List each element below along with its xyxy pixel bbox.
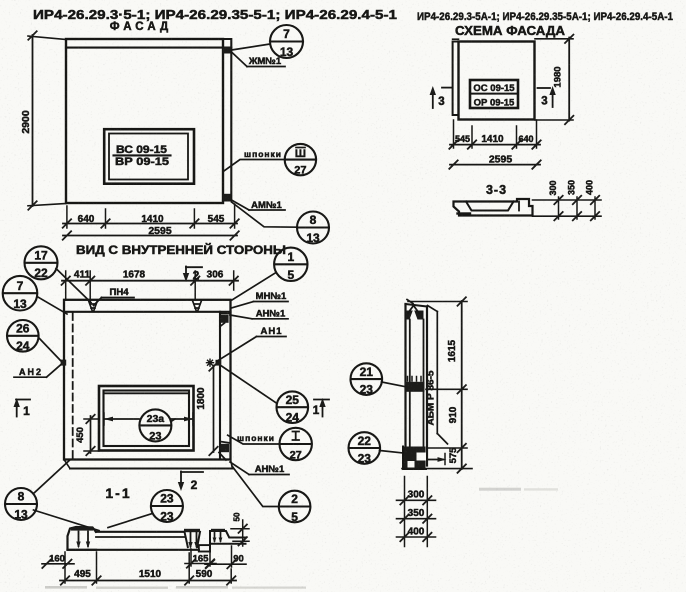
svg-text:23: 23 <box>149 431 161 443</box>
svg-text:АН№1: АН№1 <box>255 464 285 475</box>
svg-text:1: 1 <box>287 250 294 264</box>
svg-text:26: 26 <box>16 322 30 336</box>
svg-text:шпонки: шпонки <box>237 433 275 443</box>
svg-text:3: 3 <box>541 96 547 108</box>
svg-text:1: 1 <box>313 403 320 417</box>
svg-text:910: 910 <box>448 406 459 423</box>
svg-text:АН2: АН2 <box>19 367 43 377</box>
svg-text:1678: 1678 <box>123 270 146 281</box>
svg-text:1-1: 1-1 <box>105 485 131 501</box>
svg-text:50: 50 <box>233 512 242 521</box>
svg-text:3-3: 3-3 <box>486 183 507 197</box>
svg-text:25: 25 <box>286 393 300 407</box>
svg-text:400: 400 <box>585 180 595 195</box>
svg-text:545: 545 <box>208 214 225 225</box>
svg-text:17: 17 <box>34 249 48 263</box>
svg-text:5: 5 <box>287 268 294 282</box>
svg-text:13: 13 <box>306 231 320 245</box>
svg-text:13: 13 <box>280 45 294 59</box>
svg-text:2595: 2595 <box>489 154 513 166</box>
svg-text:3: 3 <box>438 96 444 108</box>
svg-text:411: 411 <box>74 270 91 281</box>
svg-text:7: 7 <box>17 279 24 293</box>
svg-text:13: 13 <box>13 297 27 311</box>
svg-text:АБМ Р 86-5: АБМ Р 86-5 <box>426 371 436 426</box>
svg-text:1410: 1410 <box>141 214 164 225</box>
svg-text:23: 23 <box>360 383 374 397</box>
svg-text:640: 640 <box>518 134 533 144</box>
svg-text:ОС 09-15: ОС 09-15 <box>473 83 515 94</box>
svg-text:МН№1: МН№1 <box>256 291 287 302</box>
svg-text:1510: 1510 <box>139 569 162 580</box>
svg-text:300: 300 <box>548 180 558 195</box>
svg-text:2595: 2595 <box>148 225 172 237</box>
svg-text:450: 450 <box>75 427 86 443</box>
svg-text:Ш: Ш <box>295 148 306 160</box>
svg-text:495: 495 <box>74 569 91 580</box>
svg-text:23а: 23а <box>147 413 165 425</box>
svg-text:5: 5 <box>291 510 298 524</box>
svg-text:640: 640 <box>78 214 95 225</box>
svg-text:22: 22 <box>358 434 372 448</box>
svg-text:2: 2 <box>291 492 298 506</box>
svg-text:2: 2 <box>191 478 198 492</box>
svg-text:АН1: АН1 <box>260 326 282 337</box>
svg-text:ПН4: ПН4 <box>110 287 130 298</box>
svg-text:545: 545 <box>455 134 470 144</box>
svg-text:350: 350 <box>567 180 577 195</box>
svg-text:21: 21 <box>360 365 374 379</box>
svg-text:7: 7 <box>283 27 290 41</box>
svg-text:350: 350 <box>408 508 425 519</box>
svg-text:13: 13 <box>14 508 28 522</box>
svg-text:2: 2 <box>193 269 200 283</box>
svg-text:ВИД С ВНУТРЕННЕЙ СТОРОНЫ: ВИД С ВНУТРЕННЕЙ СТОРОНЫ <box>76 244 286 257</box>
svg-text:ВС 09-15: ВС 09-15 <box>116 144 167 156</box>
svg-text:ИР4-26.29.3-5А-1; ИР4-26.29.35: ИР4-26.29.3-5А-1; ИР4-26.29.35-5А-1; ИР4… <box>417 11 673 23</box>
svg-text:8: 8 <box>18 490 25 504</box>
svg-text:ОР 09-15: ОР 09-15 <box>474 98 515 109</box>
svg-text:1800: 1800 <box>196 387 207 410</box>
svg-text:ИР4-26.29.3·5-1; ИР4-26.29.35-: ИР4-26.29.3·5-1; ИР4-26.29.35-5-1; ИР4-2… <box>33 8 397 22</box>
svg-text:СХЕМА ФАСАДА: СХЕМА ФАСАДА <box>455 23 566 38</box>
svg-text:400: 400 <box>408 526 425 537</box>
svg-text:22: 22 <box>34 266 48 280</box>
svg-text:306: 306 <box>207 270 224 281</box>
svg-text:2900: 2900 <box>20 110 32 134</box>
svg-text:ВР 09-15: ВР 09-15 <box>115 156 169 168</box>
svg-text:27: 27 <box>290 450 302 462</box>
svg-text:575: 575 <box>448 447 459 464</box>
svg-text:23: 23 <box>160 492 174 506</box>
svg-text:27: 27 <box>294 165 306 177</box>
svg-text:1: 1 <box>23 404 30 418</box>
svg-text:90: 90 <box>233 554 244 565</box>
svg-text:1615: 1615 <box>447 339 458 362</box>
svg-text:шпонки: шпонки <box>244 149 282 159</box>
svg-text:165: 165 <box>193 554 210 565</box>
svg-text:590: 590 <box>196 569 213 580</box>
svg-text:23: 23 <box>160 510 174 524</box>
svg-text:24: 24 <box>16 339 30 353</box>
svg-text:1980: 1980 <box>553 66 564 87</box>
svg-text:160: 160 <box>49 554 65 565</box>
svg-text:8: 8 <box>310 213 317 227</box>
svg-text:23: 23 <box>358 452 372 466</box>
svg-text:ЖМ№1: ЖМ№1 <box>248 56 282 67</box>
svg-text:ФАСАД: ФАСАД <box>110 21 173 33</box>
svg-text:АН№1: АН№1 <box>256 309 286 320</box>
svg-text:300: 300 <box>408 490 425 501</box>
svg-text:24: 24 <box>286 411 300 425</box>
svg-text:1410: 1410 <box>481 134 504 145</box>
